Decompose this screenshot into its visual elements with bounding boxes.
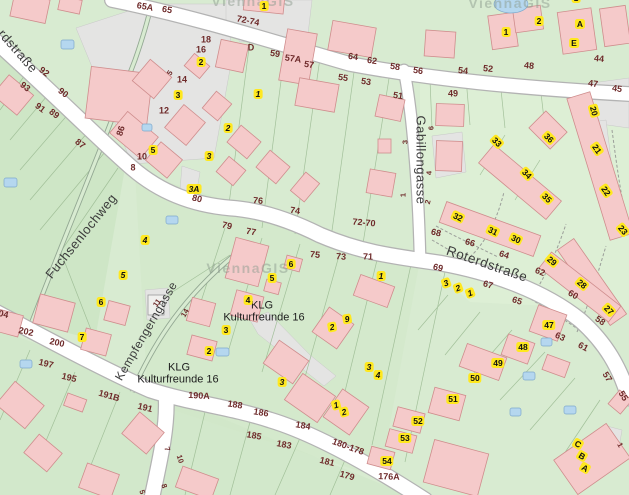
house-number-badge: 20	[587, 103, 600, 119]
house-number: 190A	[188, 391, 210, 401]
house-number: 184	[295, 420, 311, 431]
house-number: 55	[337, 73, 348, 83]
house-number: 64	[347, 52, 358, 62]
house-number: 92	[37, 65, 50, 78]
house-number: 1	[616, 441, 625, 448]
house-number: 60	[566, 289, 579, 302]
allotment-club-label: Kulturfreunde 16	[223, 313, 304, 324]
street-name-label: Kempfengerngasse	[113, 279, 179, 382]
parcel-number-badge: 2	[452, 282, 464, 294]
house-number: 5	[138, 489, 146, 495]
house-number-badge: 29	[544, 253, 561, 269]
house-number: 79	[221, 220, 233, 231]
house-number-badge: 23	[615, 222, 629, 239]
parcel-number-badge: 3	[365, 362, 374, 372]
house-number-badge: 1	[260, 1, 269, 11]
house-number: 73	[336, 252, 347, 262]
house-number-badge: B	[575, 449, 589, 463]
viennagis-watermark: ViennaGIS	[468, 0, 551, 10]
house-number: 7	[163, 446, 171, 452]
house-number: 4	[425, 171, 433, 175]
house-number-badge: 4	[244, 295, 253, 305]
house-number: 47	[587, 79, 598, 89]
house-number: 65	[161, 5, 172, 16]
house-number-badge: 2	[535, 16, 544, 26]
house-number: 62	[366, 56, 377, 66]
house-number: 58	[593, 314, 606, 327]
house-number: 61	[576, 341, 589, 354]
house-number: 75	[310, 250, 321, 260]
parcel-number-badge: 5	[119, 270, 128, 280]
house-number: 91	[33, 101, 46, 114]
house-number-badge: 6	[97, 297, 106, 307]
house-number: 57A	[284, 53, 302, 64]
house-number: 183	[276, 439, 292, 451]
labels-layer: rdstraßeFuchsenlochwegGabillongasseRoter…	[0, 0, 629, 495]
house-number-badge: 3	[174, 90, 183, 100]
house-number: 62	[534, 266, 547, 278]
house-number-badge: 33	[489, 134, 506, 151]
house-number-badge: 34	[519, 166, 536, 183]
house-number-badge: 48	[516, 342, 529, 352]
house-number-badge: 5	[268, 273, 277, 283]
house-number: 89	[47, 107, 60, 120]
viennagis-watermark: ViennaGIS	[211, 0, 294, 8]
house-number: 2	[424, 199, 432, 205]
parcel-number-badge: 3	[205, 151, 214, 161]
house-number-badge: 47	[542, 320, 555, 330]
house-number: 58	[389, 62, 400, 72]
parcel-number-badge: 4	[141, 235, 150, 245]
house-number-badge: 53	[398, 433, 411, 443]
house-number: 86	[115, 125, 127, 137]
parcel-number-badge: 1	[330, 399, 341, 411]
house-number-badge: A	[578, 461, 592, 475]
house-number: 14	[177, 76, 187, 85]
parcel-number-badge: 1	[464, 287, 476, 299]
parcel-number-badge: 2	[338, 406, 349, 418]
parcel-number-badge: 4	[374, 370, 383, 380]
house-number-badge: 54	[380, 456, 393, 466]
house-number-badge: 3	[222, 325, 231, 335]
house-number: 16	[196, 46, 206, 55]
house-number: 197	[38, 358, 55, 370]
house-number-badge: 32	[450, 210, 466, 225]
viennagis-watermark: ViennaGIS	[206, 261, 289, 275]
house-number: 71	[363, 252, 373, 261]
parcel-number-badge: 3A	[187, 184, 202, 194]
house-number: 49	[448, 90, 458, 99]
house-number: 202	[18, 326, 35, 338]
house-number-badge: A	[575, 19, 585, 29]
house-number: 8	[130, 164, 135, 173]
house-number-badge: 35	[539, 190, 556, 207]
house-number-badge: 1	[572, 0, 581, 3]
house-number: 69	[432, 262, 444, 273]
house-number: 51	[392, 91, 403, 101]
house-number: 176A	[378, 472, 400, 482]
parcel-number-badge: 1	[377, 271, 386, 281]
house-number: 8	[160, 483, 168, 489]
house-number: 93	[18, 80, 31, 93]
house-number-badge: 21	[589, 141, 605, 158]
street-name-label: Fuchsenlochweg	[43, 191, 119, 280]
house-number: 63	[554, 331, 567, 343]
house-number: 10	[175, 454, 185, 464]
house-number: D	[248, 44, 255, 53]
house-number: 87	[73, 137, 86, 150]
house-number: 186	[253, 407, 269, 418]
house-number: 45	[611, 84, 622, 94]
house-number: 44	[594, 54, 605, 64]
house-number-badge: 1	[502, 27, 511, 37]
house-number: 1	[399, 193, 407, 197]
house-number: 6	[427, 126, 435, 130]
house-number: 179	[339, 470, 356, 483]
parcel-number-badge: 2	[224, 123, 233, 133]
house-number: 77	[245, 227, 256, 238]
house-number: 3	[401, 140, 409, 144]
street-name-label: Gabillongasse	[415, 116, 428, 205]
house-number-badge: 36	[541, 130, 558, 147]
house-number: 74	[289, 206, 300, 216]
house-number: 195	[61, 372, 78, 384]
house-number: 18	[201, 36, 211, 45]
house-number: 67	[482, 279, 494, 290]
allotment-club-label: KLG	[168, 363, 190, 374]
house-number: 90	[56, 86, 69, 99]
parcel-number-badge: 3	[440, 277, 452, 289]
house-number-badge: 30	[508, 232, 524, 247]
house-number: 66	[464, 237, 476, 248]
house-number: 191	[137, 402, 154, 414]
house-number: 12	[159, 107, 169, 116]
house-number: 68	[430, 227, 442, 238]
house-number: 76	[253, 196, 264, 206]
house-number: 72-70	[352, 218, 376, 229]
house-number: 14	[180, 308, 191, 319]
house-number: 191B	[97, 389, 120, 404]
house-number: 65	[511, 295, 523, 307]
house-number-badge: 2	[197, 57, 206, 67]
house-number: 65A	[136, 1, 154, 13]
house-number-badge: 2	[205, 346, 214, 356]
house-number-badge: 5	[149, 145, 158, 155]
parcel-number-badge: 1	[254, 89, 263, 99]
allotment-club-label: Kulturfreunde 16	[137, 375, 218, 386]
house-number: 57	[601, 370, 614, 383]
house-number: 204	[0, 308, 9, 320]
house-number: 10	[137, 153, 147, 162]
house-number: 72-74	[236, 14, 260, 27]
house-number-badge: 49	[491, 358, 504, 368]
house-number: 59	[269, 49, 280, 59]
house-number-badge: C	[571, 437, 585, 451]
house-number: 11	[152, 298, 163, 309]
house-number-badge: 27	[601, 302, 618, 319]
house-number: 64	[498, 249, 510, 261]
house-number: 48	[524, 61, 535, 71]
house-number: 55	[617, 389, 629, 402]
house-number: 181	[319, 456, 336, 468]
street-name-label: Roterdstraße	[445, 244, 530, 284]
parcel-number-badge: 3	[278, 377, 287, 387]
street-name-label: rdstraße	[0, 27, 40, 75]
house-number: 200	[49, 337, 66, 349]
house-number-badge: 31	[485, 224, 501, 239]
house-number: 80	[191, 193, 203, 204]
house-number-badge: E	[569, 38, 579, 48]
house-number: 53	[360, 77, 371, 87]
house-number: 56	[412, 66, 423, 76]
parcel-number-badge: 2	[327, 321, 337, 332]
house-number-badge: 7	[78, 332, 87, 342]
house-number-badge: 22	[598, 183, 614, 200]
house-number-badge: 51	[446, 394, 459, 404]
house-number-badge: 6	[287, 259, 296, 269]
house-number: 54	[458, 66, 469, 76]
house-number: 57	[303, 60, 314, 70]
parcel-number-badge: 9	[342, 313, 352, 324]
house-number: 5	[166, 69, 175, 77]
house-number: 185	[246, 430, 262, 441]
house-number: 52	[483, 64, 494, 74]
map-canvas[interactable]: rdstraßeFuchsenlochwegGabillongasseRoter…	[0, 0, 629, 495]
house-number-badge: 28	[574, 276, 591, 292]
house-number: 180-178	[331, 437, 365, 457]
house-number-badge: 52	[411, 416, 424, 426]
house-number-badge: 50	[468, 373, 481, 383]
allotment-club-label: KLG	[251, 301, 273, 312]
house-number: 188	[227, 399, 243, 410]
